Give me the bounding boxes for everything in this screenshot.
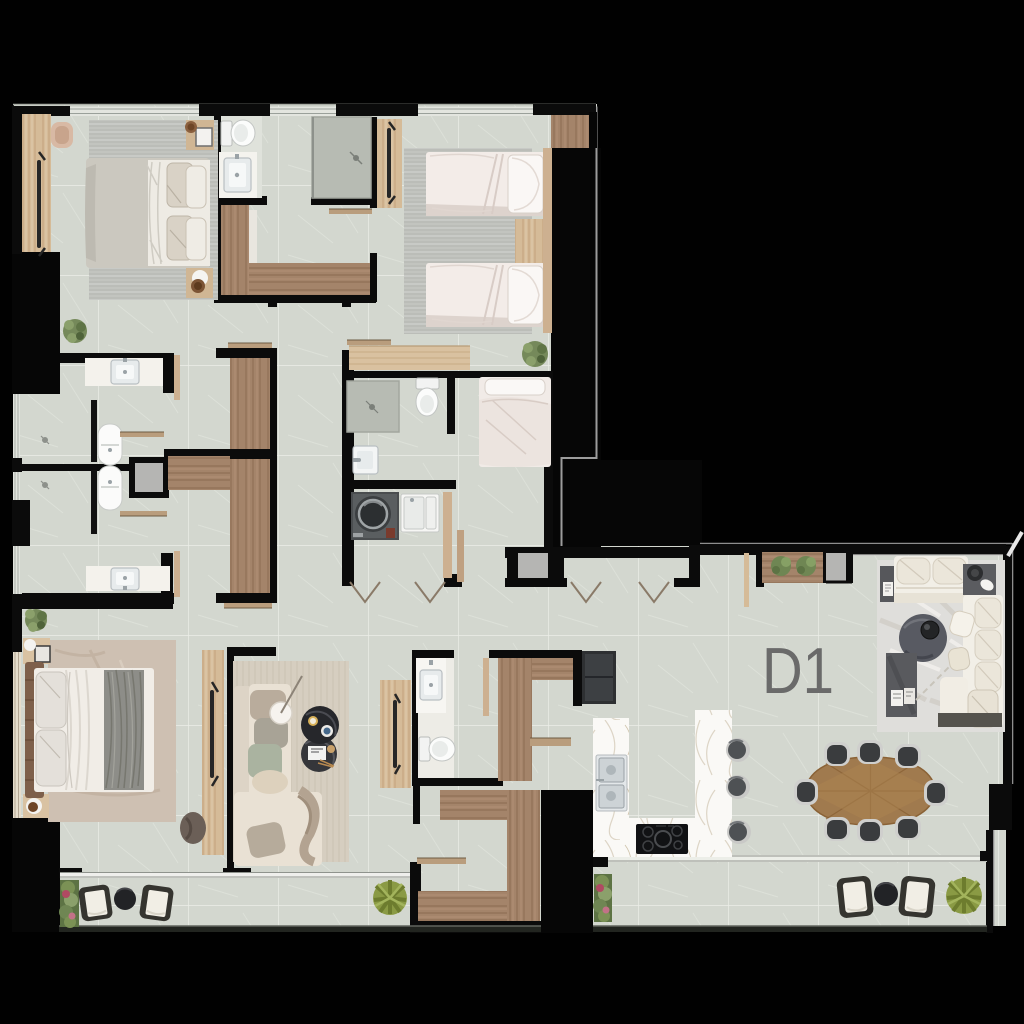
- svg-text:D1: D1: [762, 634, 834, 707]
